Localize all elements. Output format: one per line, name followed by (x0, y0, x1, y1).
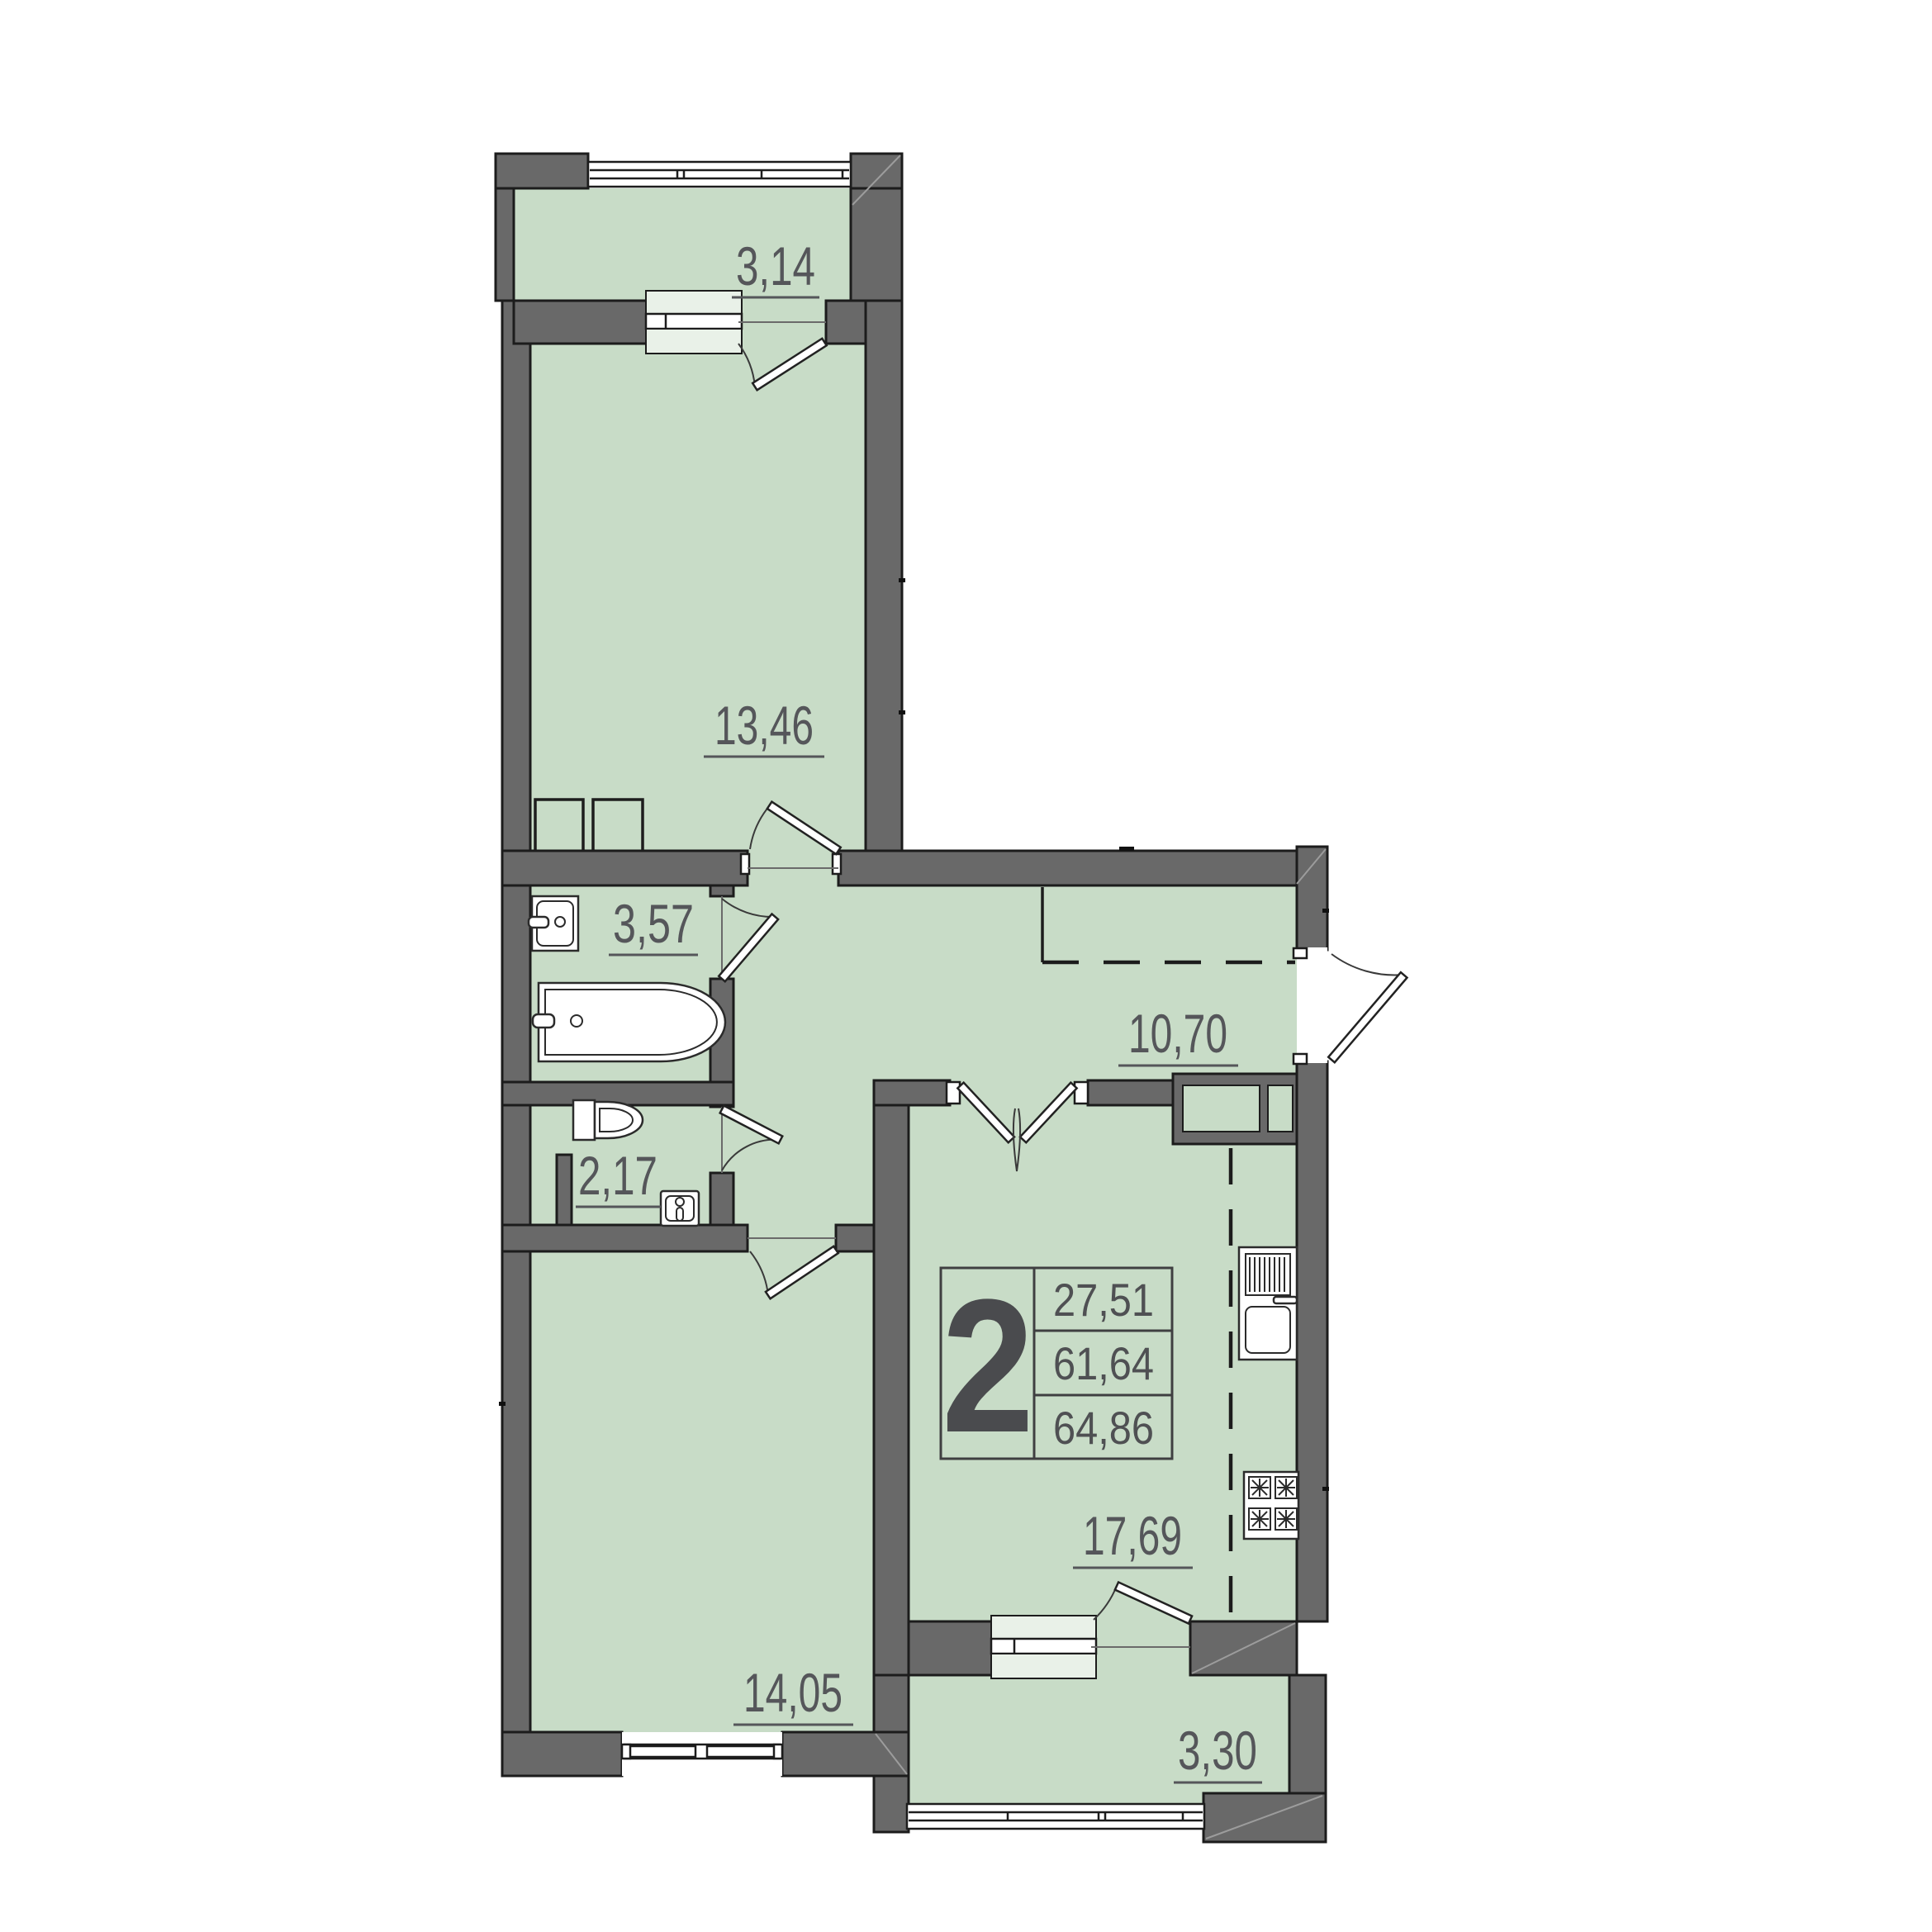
bathroom-sink (529, 896, 578, 951)
wall (826, 301, 866, 344)
label-bedroom2: 14,05 (743, 1662, 843, 1723)
wall-joint-tick (899, 710, 905, 714)
label-kitchen-living: 17,69 (1083, 1505, 1182, 1566)
wall (851, 188, 902, 301)
wall (502, 851, 748, 885)
wall-joint-tick (1322, 1487, 1329, 1491)
kitchen-sink (1239, 1247, 1297, 1360)
balcony-glazing-bottom (907, 1804, 1204, 1829)
stove (1244, 1472, 1298, 1539)
label-balcony-bottom: 3,30 (1178, 1720, 1257, 1781)
badge-rooms-count: 2 (942, 1260, 1034, 1472)
wall (514, 301, 653, 344)
label-hallway: 10,70 (1128, 1003, 1227, 1064)
wall (710, 885, 733, 896)
wall (496, 188, 514, 301)
wall (866, 301, 902, 851)
wall-joint-tick (499, 1402, 506, 1406)
wall (496, 154, 588, 188)
label-wc: 2,17 (578, 1145, 657, 1206)
room-bedroom2 (530, 1251, 874, 1732)
vent-niche (1268, 1085, 1293, 1132)
vent-niche (1183, 1085, 1260, 1132)
badge-living-area: 27,51 (1053, 1274, 1154, 1326)
entrance-door (1294, 947, 1407, 1064)
wall-exterior-right (1297, 1061, 1327, 1621)
wall (782, 1732, 909, 1776)
room-hallway-south (733, 1080, 874, 1225)
wall-joint-tick (899, 578, 905, 582)
floor-plan-page: 2 27,51 61,64 64,86 3,14 13,46 3,57 2,17… (0, 0, 1932, 1932)
wc-sink (661, 1191, 699, 1226)
wall (1088, 1080, 1173, 1105)
bedroom2-window (622, 1732, 782, 1776)
balcony-glazing-top (588, 162, 851, 187)
wall (557, 1155, 572, 1225)
bathtub (533, 983, 725, 1061)
wall (874, 1080, 909, 1675)
floor-plan-drawing: 2 27,51 61,64 64,86 3,14 13,46 3,57 2,17… (0, 0, 1932, 1932)
label-bathroom: 3,57 (613, 893, 694, 954)
wall (1289, 1675, 1326, 1793)
wall (874, 1080, 950, 1105)
toilet (573, 1100, 643, 1140)
wall-joint-tick (1119, 847, 1134, 851)
wall (502, 1732, 622, 1776)
wall (909, 1621, 996, 1675)
wall (838, 851, 1297, 885)
wall-exterior-right (1297, 847, 1327, 950)
label-bedroom: 13,46 (714, 695, 814, 756)
wall-exterior-left (502, 301, 530, 1776)
badge-total-area: 64,86 (1053, 1402, 1154, 1454)
unit-info-box: 2 27,51 61,64 64,86 (941, 1260, 1172, 1472)
door-gap (1091, 1621, 1190, 1675)
wall-joint-tick (1322, 909, 1329, 913)
label-balcony-top: 3,14 (736, 235, 815, 297)
room-bedroom (530, 344, 866, 851)
wall (502, 1225, 748, 1251)
badge-floor-area: 61,64 (1053, 1337, 1154, 1389)
